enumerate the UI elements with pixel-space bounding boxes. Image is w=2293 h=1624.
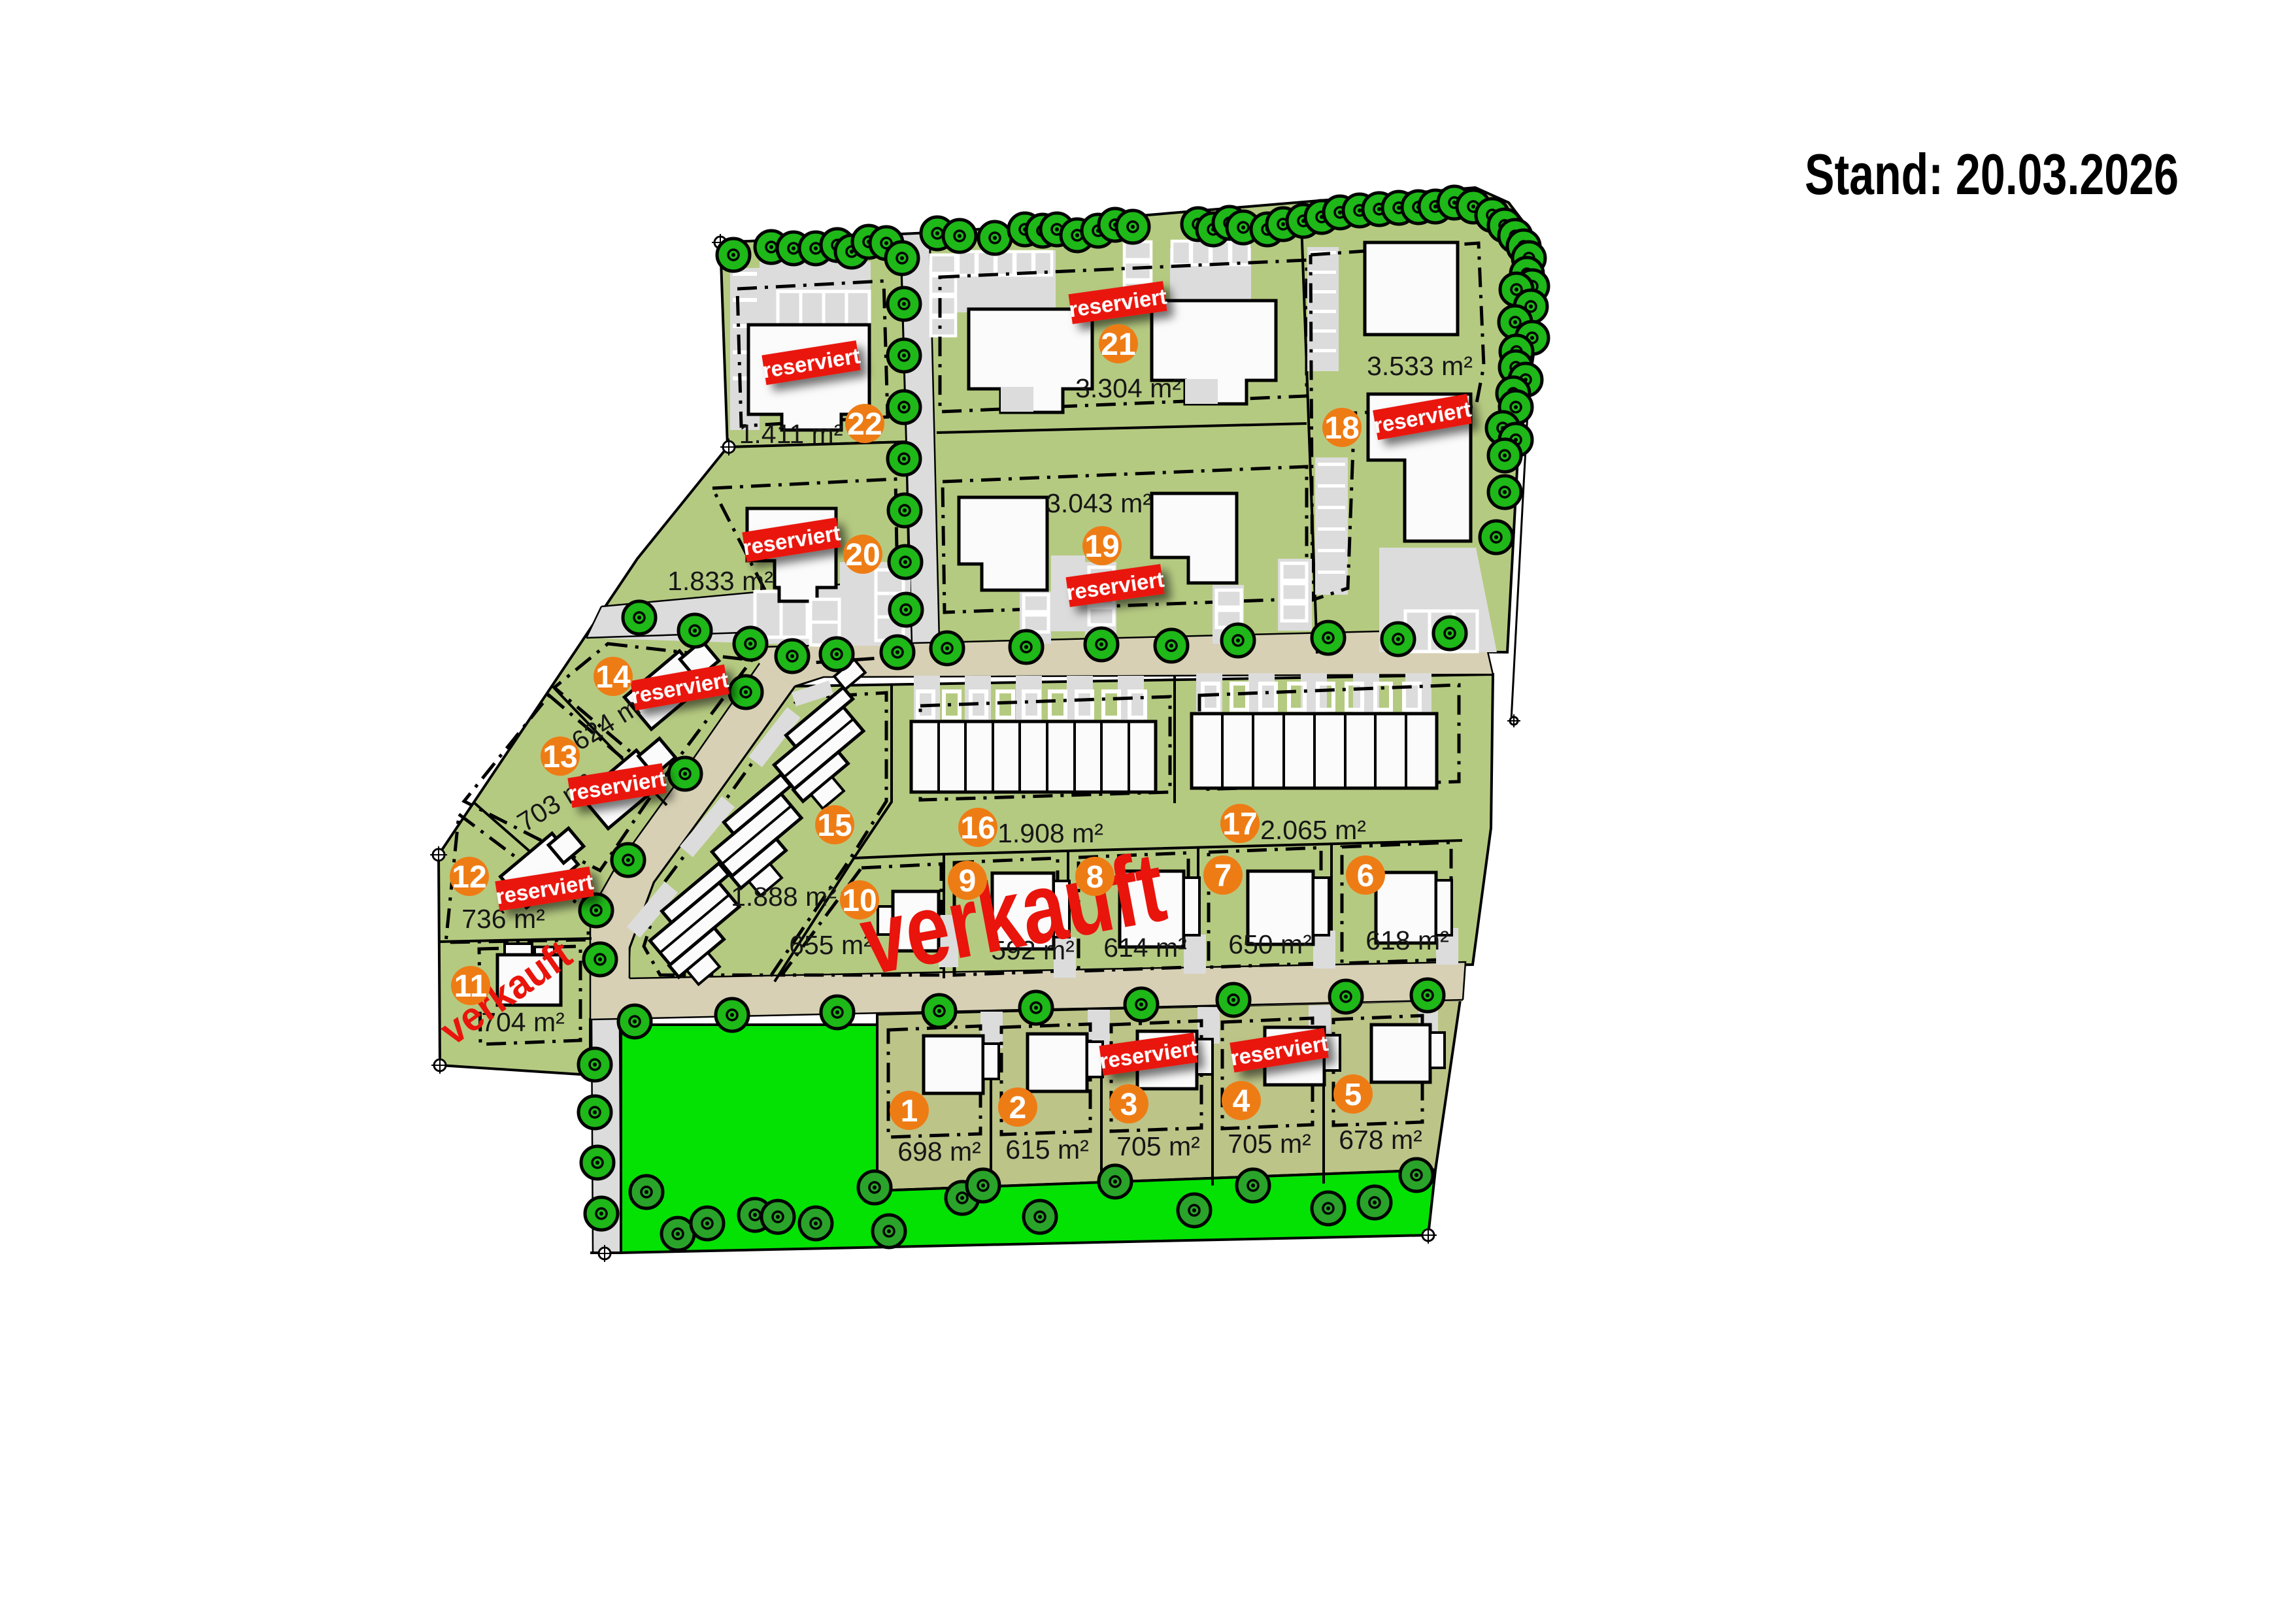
svg-text:2.065 m²: 2.065 m² bbox=[1260, 815, 1366, 845]
svg-text:7: 7 bbox=[1214, 859, 1232, 893]
svg-text:698 m²: 698 m² bbox=[897, 1136, 981, 1167]
svg-text:655 m²: 655 m² bbox=[789, 930, 873, 960]
svg-text:14: 14 bbox=[595, 660, 631, 695]
svg-text:705 m²: 705 m² bbox=[1116, 1131, 1200, 1161]
svg-text:1: 1 bbox=[901, 1094, 918, 1129]
svg-text:3: 3 bbox=[1120, 1087, 1138, 1122]
svg-text:3.533 m²: 3.533 m² bbox=[1367, 351, 1473, 381]
svg-text:17: 17 bbox=[1222, 807, 1257, 842]
svg-text:10: 10 bbox=[842, 884, 877, 918]
svg-text:615 m²: 615 m² bbox=[1005, 1135, 1089, 1165]
svg-text:12: 12 bbox=[452, 860, 486, 895]
svg-text:6: 6 bbox=[1357, 859, 1375, 893]
svg-text:15: 15 bbox=[817, 808, 852, 843]
svg-text:678 m²: 678 m² bbox=[1339, 1125, 1422, 1155]
svg-text:4: 4 bbox=[1233, 1084, 1250, 1119]
svg-text:650 m²: 650 m² bbox=[1228, 929, 1312, 959]
svg-text:16: 16 bbox=[960, 811, 995, 846]
svg-text:1.888 m²: 1.888 m² bbox=[731, 882, 837, 912]
svg-text:19: 19 bbox=[1084, 529, 1119, 564]
svg-text:1.833 m²: 1.833 m² bbox=[667, 566, 773, 596]
svg-text:Stand: 20.03.2026: Stand: 20.03.2026 bbox=[1805, 142, 2179, 207]
svg-text:2: 2 bbox=[1009, 1091, 1027, 1125]
svg-text:18: 18 bbox=[1324, 411, 1359, 446]
svg-text:5: 5 bbox=[1345, 1078, 1362, 1112]
svg-text:705 m²: 705 m² bbox=[1228, 1129, 1311, 1159]
svg-text:3.304 m²: 3.304 m² bbox=[1075, 373, 1181, 403]
svg-text:3.043 m²: 3.043 m² bbox=[1046, 488, 1152, 518]
svg-text:13: 13 bbox=[543, 740, 577, 774]
svg-text:618 m²: 618 m² bbox=[1365, 925, 1449, 955]
svg-text:11: 11 bbox=[454, 969, 488, 1004]
svg-text:20: 20 bbox=[845, 538, 880, 572]
svg-text:8: 8 bbox=[1086, 860, 1104, 895]
svg-text:9: 9 bbox=[959, 864, 977, 899]
svg-text:1.411 m²: 1.411 m² bbox=[739, 419, 843, 449]
svg-text:22: 22 bbox=[847, 407, 882, 442]
svg-text:21: 21 bbox=[1101, 327, 1135, 362]
